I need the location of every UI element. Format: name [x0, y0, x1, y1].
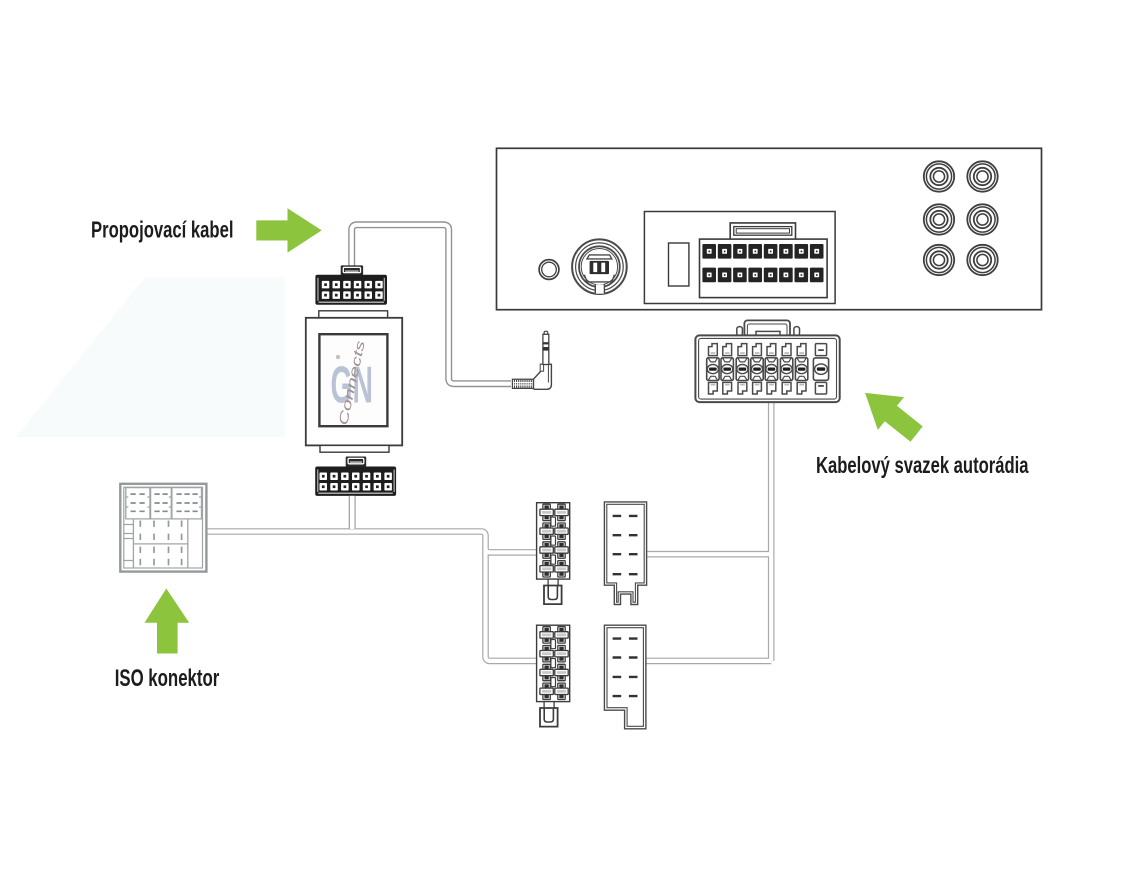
- svg-text:Propojovací kabel: Propojovací kabel: [91, 217, 234, 243]
- svg-text:Kabelový svazek autorádia: Kabelový svazek autorádia: [816, 452, 1029, 478]
- svg-text:ISO konektor: ISO konektor: [115, 665, 220, 692]
